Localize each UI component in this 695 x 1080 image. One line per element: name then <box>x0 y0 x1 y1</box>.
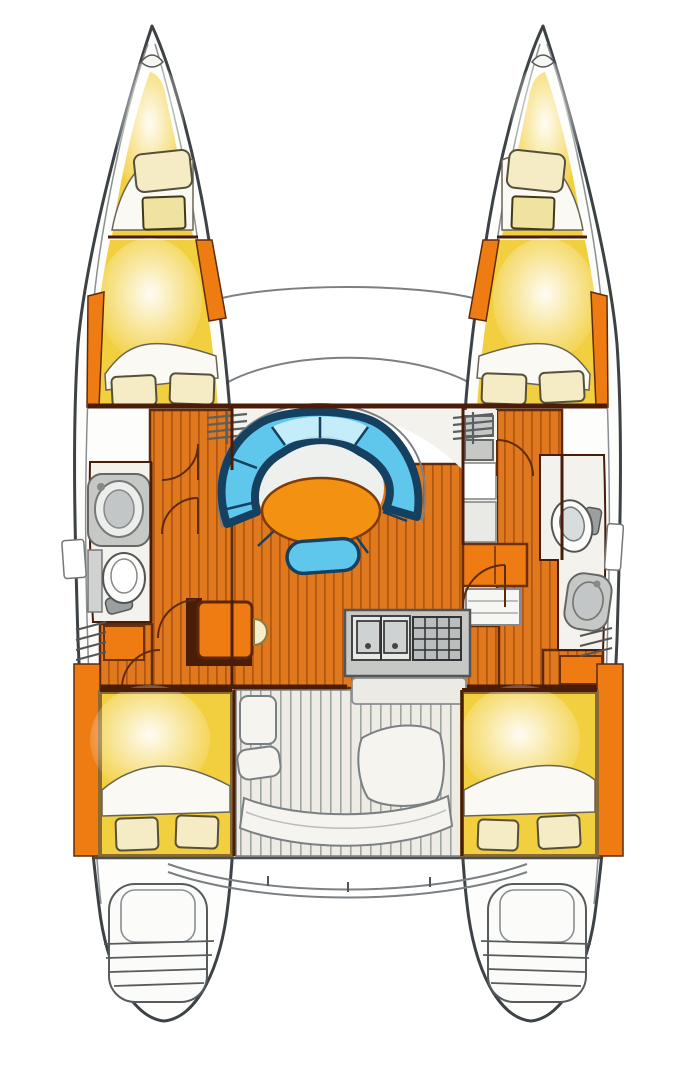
port-cabinet <box>104 626 144 660</box>
cockpit-galley-module <box>352 678 466 704</box>
starboard-transom-steps <box>481 884 591 1002</box>
nav-table <box>198 602 252 658</box>
starboard-hull-window <box>604 523 623 570</box>
cockpit-seat <box>358 725 444 805</box>
floorplan-drawing <box>0 0 695 1080</box>
port-sink <box>104 490 134 528</box>
starboard-forward-cabin <box>469 238 608 407</box>
cockpit-helm-seat <box>236 745 282 781</box>
port-forward-cabin <box>87 238 226 407</box>
ottoman-bench <box>286 538 360 575</box>
catamaran-floorplan <box>0 0 695 1080</box>
port-hull-window <box>62 539 87 578</box>
foredeck-beams <box>205 287 492 399</box>
cockpit <box>236 678 466 856</box>
cockpit-side-table <box>240 696 276 744</box>
fridge-module <box>466 589 520 625</box>
port-aft-cabin <box>74 664 234 856</box>
port-transom-steps <box>104 884 214 1002</box>
salon-table <box>262 478 380 544</box>
starboard-aft-cabin <box>460 664 623 856</box>
starboard-aft-cabinet <box>560 656 602 684</box>
galley <box>345 610 470 676</box>
